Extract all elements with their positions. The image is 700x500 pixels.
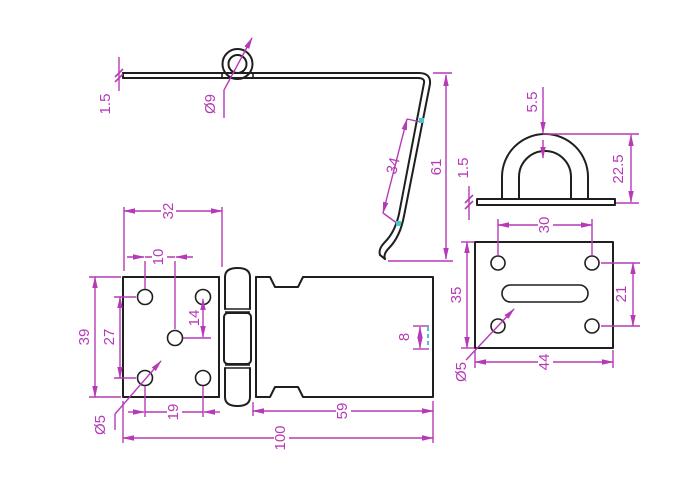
dim-label-hasp-thickness: 1.5 (97, 94, 114, 115)
staple-hole-top-right (585, 256, 599, 270)
dim-label-hinge-offset: 32 (160, 203, 177, 220)
dim-hole-pitch-x: 10 (127, 245, 193, 329)
dim-label-bend-length: 34 (383, 156, 404, 176)
dim-label-hasp-hole-diameter: Ø5 (92, 415, 109, 435)
hole-center (168, 331, 183, 346)
dim-staple-plate-height: 35 (448, 242, 474, 348)
dim-staple-hole-pitch-y: 21 (601, 263, 640, 326)
drawing-sheet: 1.5 Ø9 34 61 (0, 0, 700, 500)
technical-drawing: 1.5 Ø9 34 61 (0, 0, 700, 500)
dim-label-staple-plate-height: 35 (448, 287, 465, 304)
dim-staple-hole-pitch-x: 30 (498, 213, 592, 255)
dim-label-bend-drop: 61 (428, 159, 445, 176)
staple-hole-bottom-right (585, 319, 599, 333)
dim-staple-plate-length: 44 (475, 350, 613, 375)
dim-label-staple-hole-diameter: Ø5 (453, 362, 470, 382)
dim-label-overall-length: 100 (272, 425, 289, 450)
hasp-side-inner-contour (123, 78, 424, 255)
dim-label-staple-hole-pitch-x: 30 (536, 217, 553, 234)
staple-base-plate-side (477, 199, 615, 205)
dim-label-staple-hole-pitch-y: 21 (613, 286, 630, 303)
hinge-knuckles (224, 268, 251, 406)
dim-label-staple-plate-length: 44 (536, 354, 553, 371)
dim-label-bottom-hole-pitch: 19 (165, 404, 182, 421)
dim-strap-length: 59 (253, 399, 433, 424)
staple-front-view: 30 35 21 44 Ø5 (448, 213, 640, 382)
dim-label-hole-rows-spacing: 27 (101, 329, 118, 346)
staple-slot (502, 285, 588, 302)
hasp-front-view: 32 10 14 27 39 (76, 198, 433, 456)
dim-staple-plate-thickness: 1.5 (455, 158, 473, 220)
dim-label-ring-diameter: Ø9 (202, 94, 219, 114)
staple-loop-inner (519, 151, 571, 199)
dim-bend-length: 34 (383, 118, 424, 226)
dim-staple-hole-diameter: Ø5 (453, 309, 514, 382)
hole-top-left (138, 290, 153, 305)
staple-hole-top-left (491, 256, 505, 270)
dim-label-wire-width: 5.5 (524, 92, 541, 113)
dim-label-hole-pitch-x: 10 (150, 249, 167, 266)
hasp-side-view: 1.5 Ø9 34 61 (97, 38, 453, 261)
dim-label-staple-thickness: 1.5 (455, 158, 472, 179)
dim-hinge-offset: 32 (124, 198, 222, 271)
staple-loop-outer (502, 134, 588, 199)
dim-hasp-plate-thickness: 1.5 (97, 57, 123, 114)
staple-side-view: 5.5 22.5 1.5 (455, 87, 639, 220)
dim-label-loop-height: 22.5 (610, 154, 627, 183)
dim-label-plate-width: 39 (76, 329, 93, 346)
dim-staple-wire-width: 5.5 (524, 87, 543, 158)
dim-staple-loop-height: 22.5 (543, 134, 639, 203)
dim-hole-rows-spacing: 27 (101, 297, 136, 378)
dim-label-edge-slot-width: 8 (396, 333, 413, 341)
dim-edge-slot-width: 8 (396, 326, 429, 349)
dim-label-strap-length: 59 (334, 403, 351, 420)
dim-bottom-hole-pitch: 19 (128, 386, 220, 425)
dim-hole-pitch-y: 14 (183, 299, 211, 338)
hinge-middle-knuckle (224, 313, 251, 364)
dim-label-hole-pitch-y: 14 (186, 310, 203, 327)
hole-bottom-right (196, 371, 211, 386)
dim-hasp-hole-diameter: Ø5 (92, 361, 161, 435)
